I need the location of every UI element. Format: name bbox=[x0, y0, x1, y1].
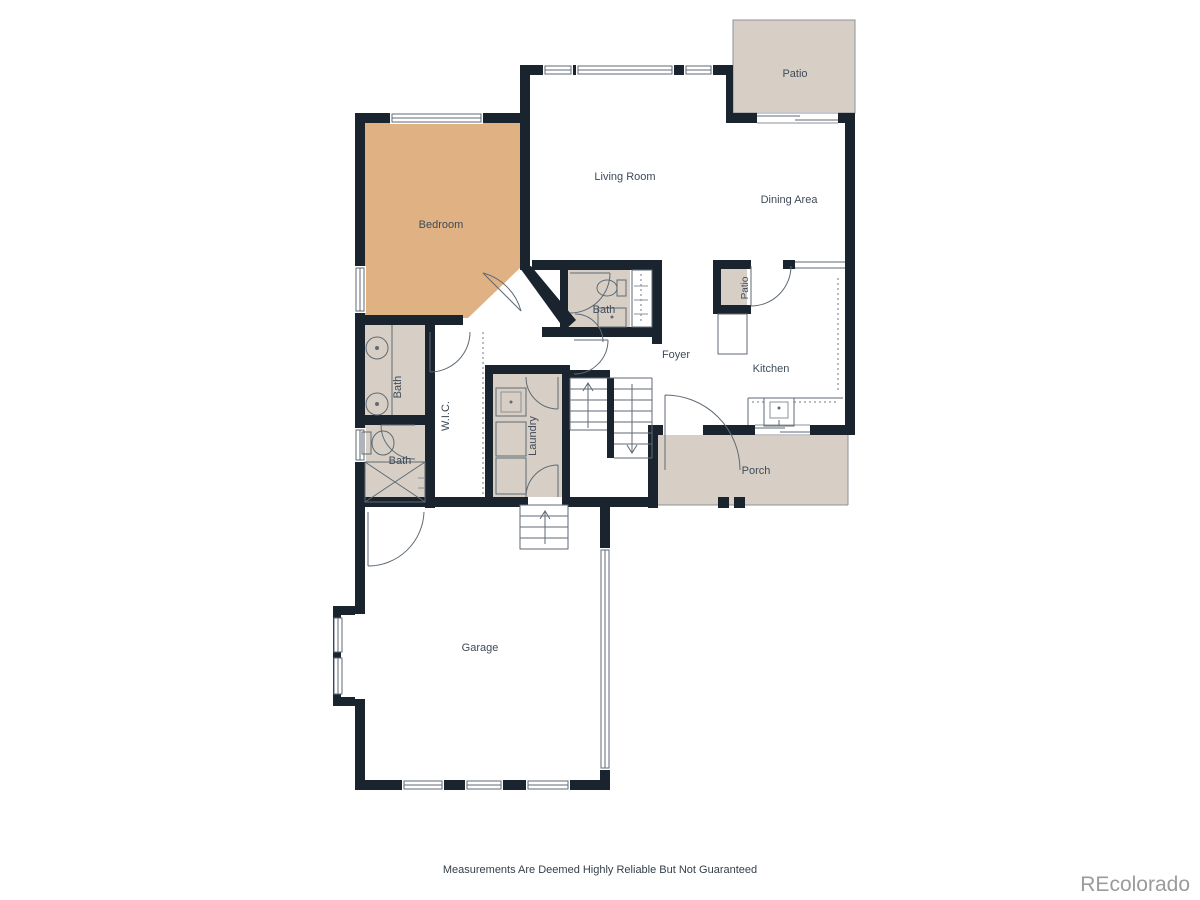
garage-label: Garage bbox=[462, 642, 499, 654]
stairs-down-arrow bbox=[627, 384, 637, 453]
living-room-label: Living Room bbox=[594, 171, 655, 183]
garage-entry-door bbox=[368, 512, 424, 566]
patio-label: Patio bbox=[782, 68, 807, 80]
dining-area-label: Dining Area bbox=[761, 194, 819, 206]
room-bath-upper bbox=[568, 270, 630, 327]
footer: Measurements Are Deemed Highly Reliable … bbox=[443, 864, 1190, 896]
bedroom-label: Bedroom bbox=[419, 219, 464, 231]
floorplan-page: Patio Living Room Dining Area Bedroom Ba… bbox=[0, 0, 1200, 900]
stairs-up-arrow bbox=[583, 383, 593, 428]
hall-door bbox=[574, 340, 608, 374]
floorplan-drawing: Patio Living Room Dining Area Bedroom Ba… bbox=[0, 0, 1200, 900]
room-bath-primary bbox=[365, 325, 425, 415]
porch-label: Porch bbox=[742, 465, 771, 477]
bath-lower-label: Bath bbox=[389, 455, 412, 467]
bath-upper-label: Bath bbox=[593, 304, 616, 316]
sliding-door bbox=[757, 112, 838, 124]
laundry-label: Laundry bbox=[527, 416, 539, 456]
kitchen-label: Kitchen bbox=[753, 363, 790, 375]
disclaimer-text: Measurements Are Deemed Highly Reliable … bbox=[443, 864, 757, 876]
watermark-text: REcolorado bbox=[1080, 873, 1190, 896]
wic-label: W.I.C. bbox=[440, 401, 452, 431]
cabinet bbox=[718, 314, 747, 354]
pantry-nook-label: Patio bbox=[740, 276, 751, 299]
closet bbox=[632, 270, 652, 327]
bath-primary-label: Bath bbox=[392, 376, 404, 399]
room-patio bbox=[733, 20, 855, 113]
wic-door bbox=[430, 332, 470, 372]
pantry-door bbox=[751, 266, 791, 306]
foyer-label: Foyer bbox=[662, 349, 690, 361]
